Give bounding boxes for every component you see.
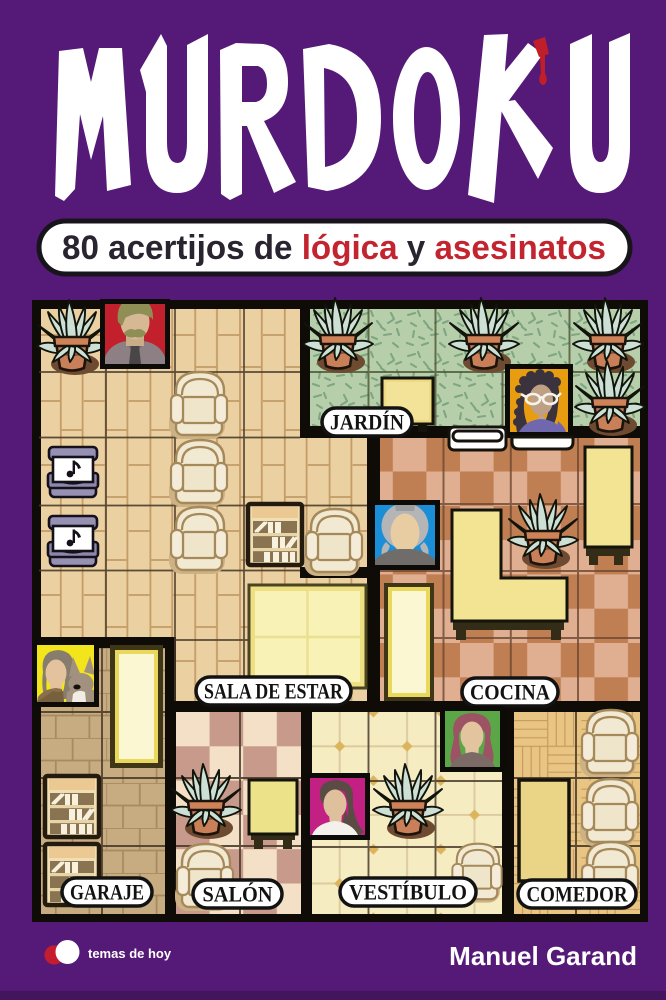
svg-text:COMEDOR: COMEDOR [527,882,629,907]
svg-text:SALÓN: SALÓN [203,882,273,907]
svg-text:GARAJE: GARAJE [70,880,144,905]
svg-text:temas de hoy: temas de hoy [88,946,172,961]
svg-text:SALA DE ESTAR: SALA DE ESTAR [204,679,344,704]
svg-text:Manuel Garand: Manuel Garand [449,941,637,971]
svg-text:JARDÍN: JARDÍN [330,410,404,435]
svg-text:COCINA: COCINA [470,680,550,705]
svg-text:VESTÍBULO: VESTÍBULO [349,880,467,905]
svg-text:80 acertijos de lógica y asesi: 80 acertijos de lógica y asesinatos [62,229,606,267]
